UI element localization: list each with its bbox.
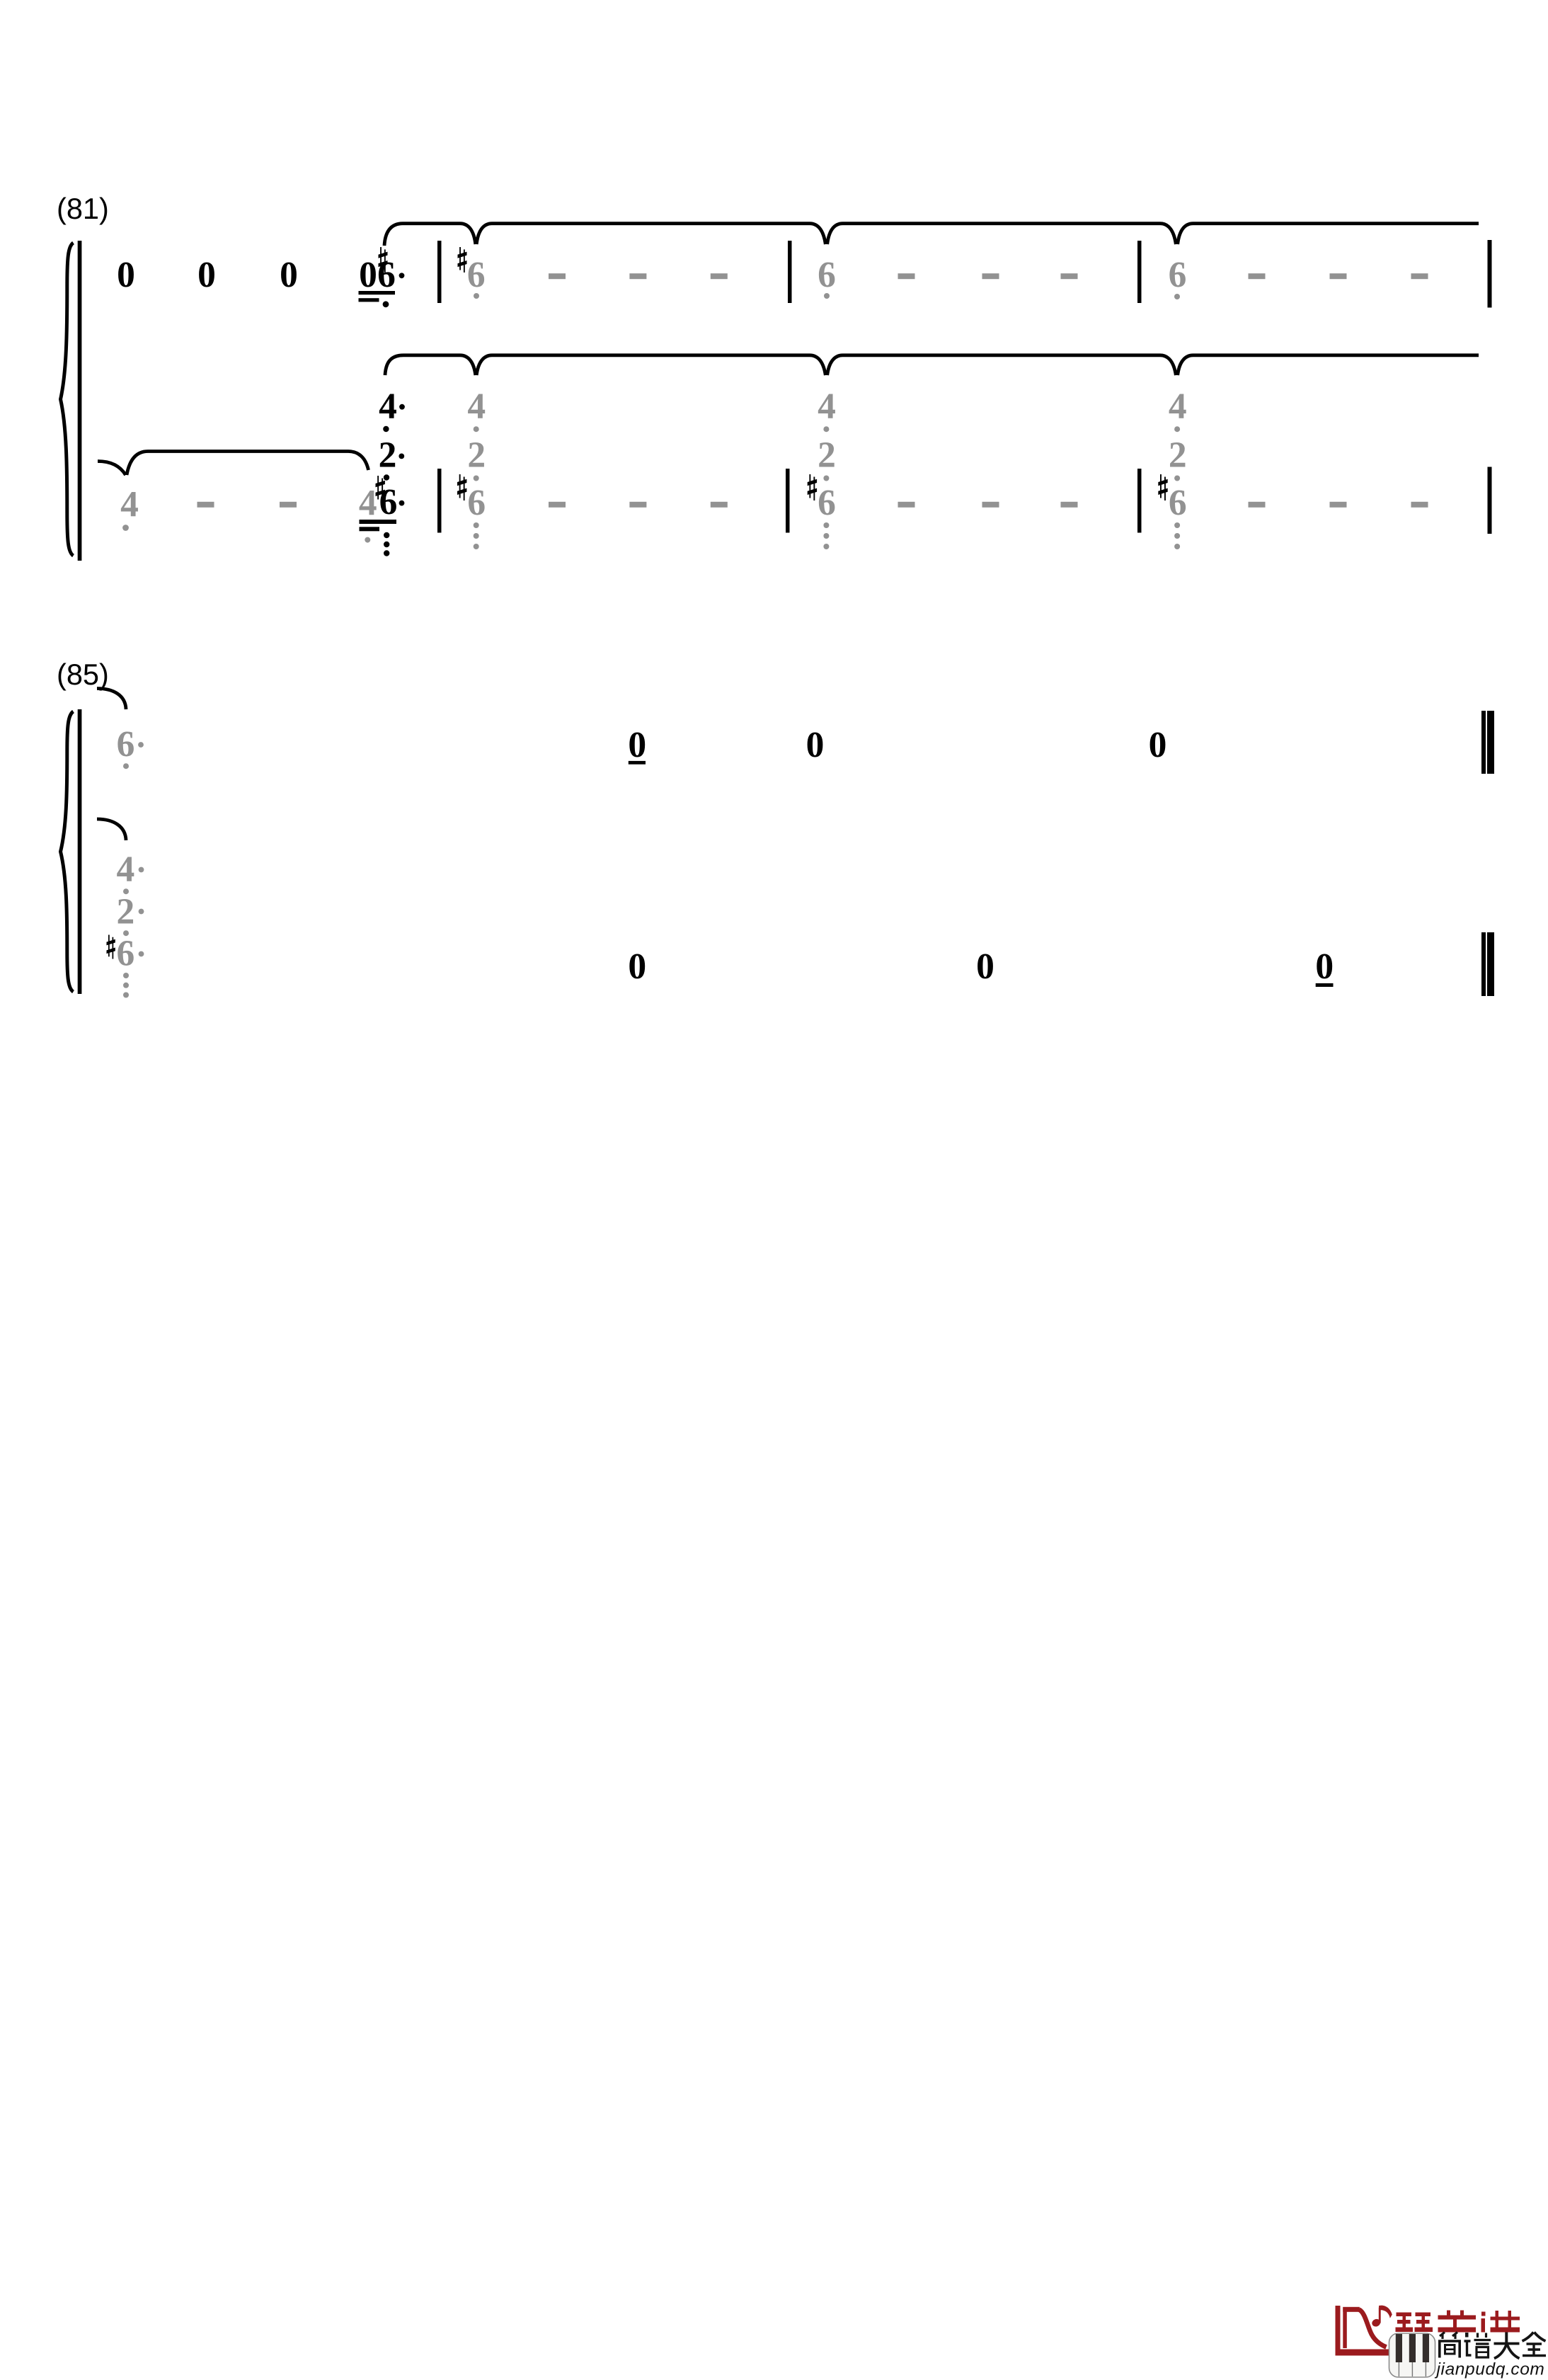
svg-text:0: 0 [1149,725,1167,765]
svg-text:0: 0 [117,255,135,295]
svg-text:6: 6 [467,255,486,295]
svg-text:6: 6 [117,934,135,974]
svg-text:6: 6 [379,482,398,522]
svg-text:4: 4 [467,387,486,427]
svg-text:0: 0 [1315,946,1334,987]
svg-text:4: 4 [1169,387,1187,427]
svg-text:(85): (85) [57,658,109,691]
svg-text:0: 0 [197,255,216,295]
svg-text:6: 6 [117,724,135,765]
svg-text:0: 0 [280,255,298,295]
svg-text:2: 2 [818,435,836,476]
svg-text:6: 6 [818,483,836,523]
svg-text:0: 0 [628,725,646,765]
svg-text:4: 4 [120,484,139,525]
svg-text:6: 6 [1169,483,1187,523]
svg-text:4: 4 [117,849,135,890]
svg-text:4: 4 [379,387,397,427]
svg-text:0: 0 [976,946,994,987]
svg-text:4: 4 [818,387,836,427]
svg-text:2: 2 [379,435,397,476]
svg-text:6: 6 [818,255,836,295]
svg-text:0: 0 [628,946,646,987]
svg-text:2: 2 [1169,435,1187,476]
svg-text:0: 0 [806,725,825,765]
svg-text:2: 2 [117,892,135,932]
svg-text:jianpudq.com: jianpudq.com [1435,2360,1545,2379]
svg-text:6: 6 [467,483,486,523]
svg-text:0: 0 [359,255,377,295]
svg-text:4: 4 [359,483,377,523]
svg-text:2: 2 [467,435,486,476]
svg-text:6: 6 [1169,255,1187,295]
svg-text:(81): (81) [57,192,109,225]
